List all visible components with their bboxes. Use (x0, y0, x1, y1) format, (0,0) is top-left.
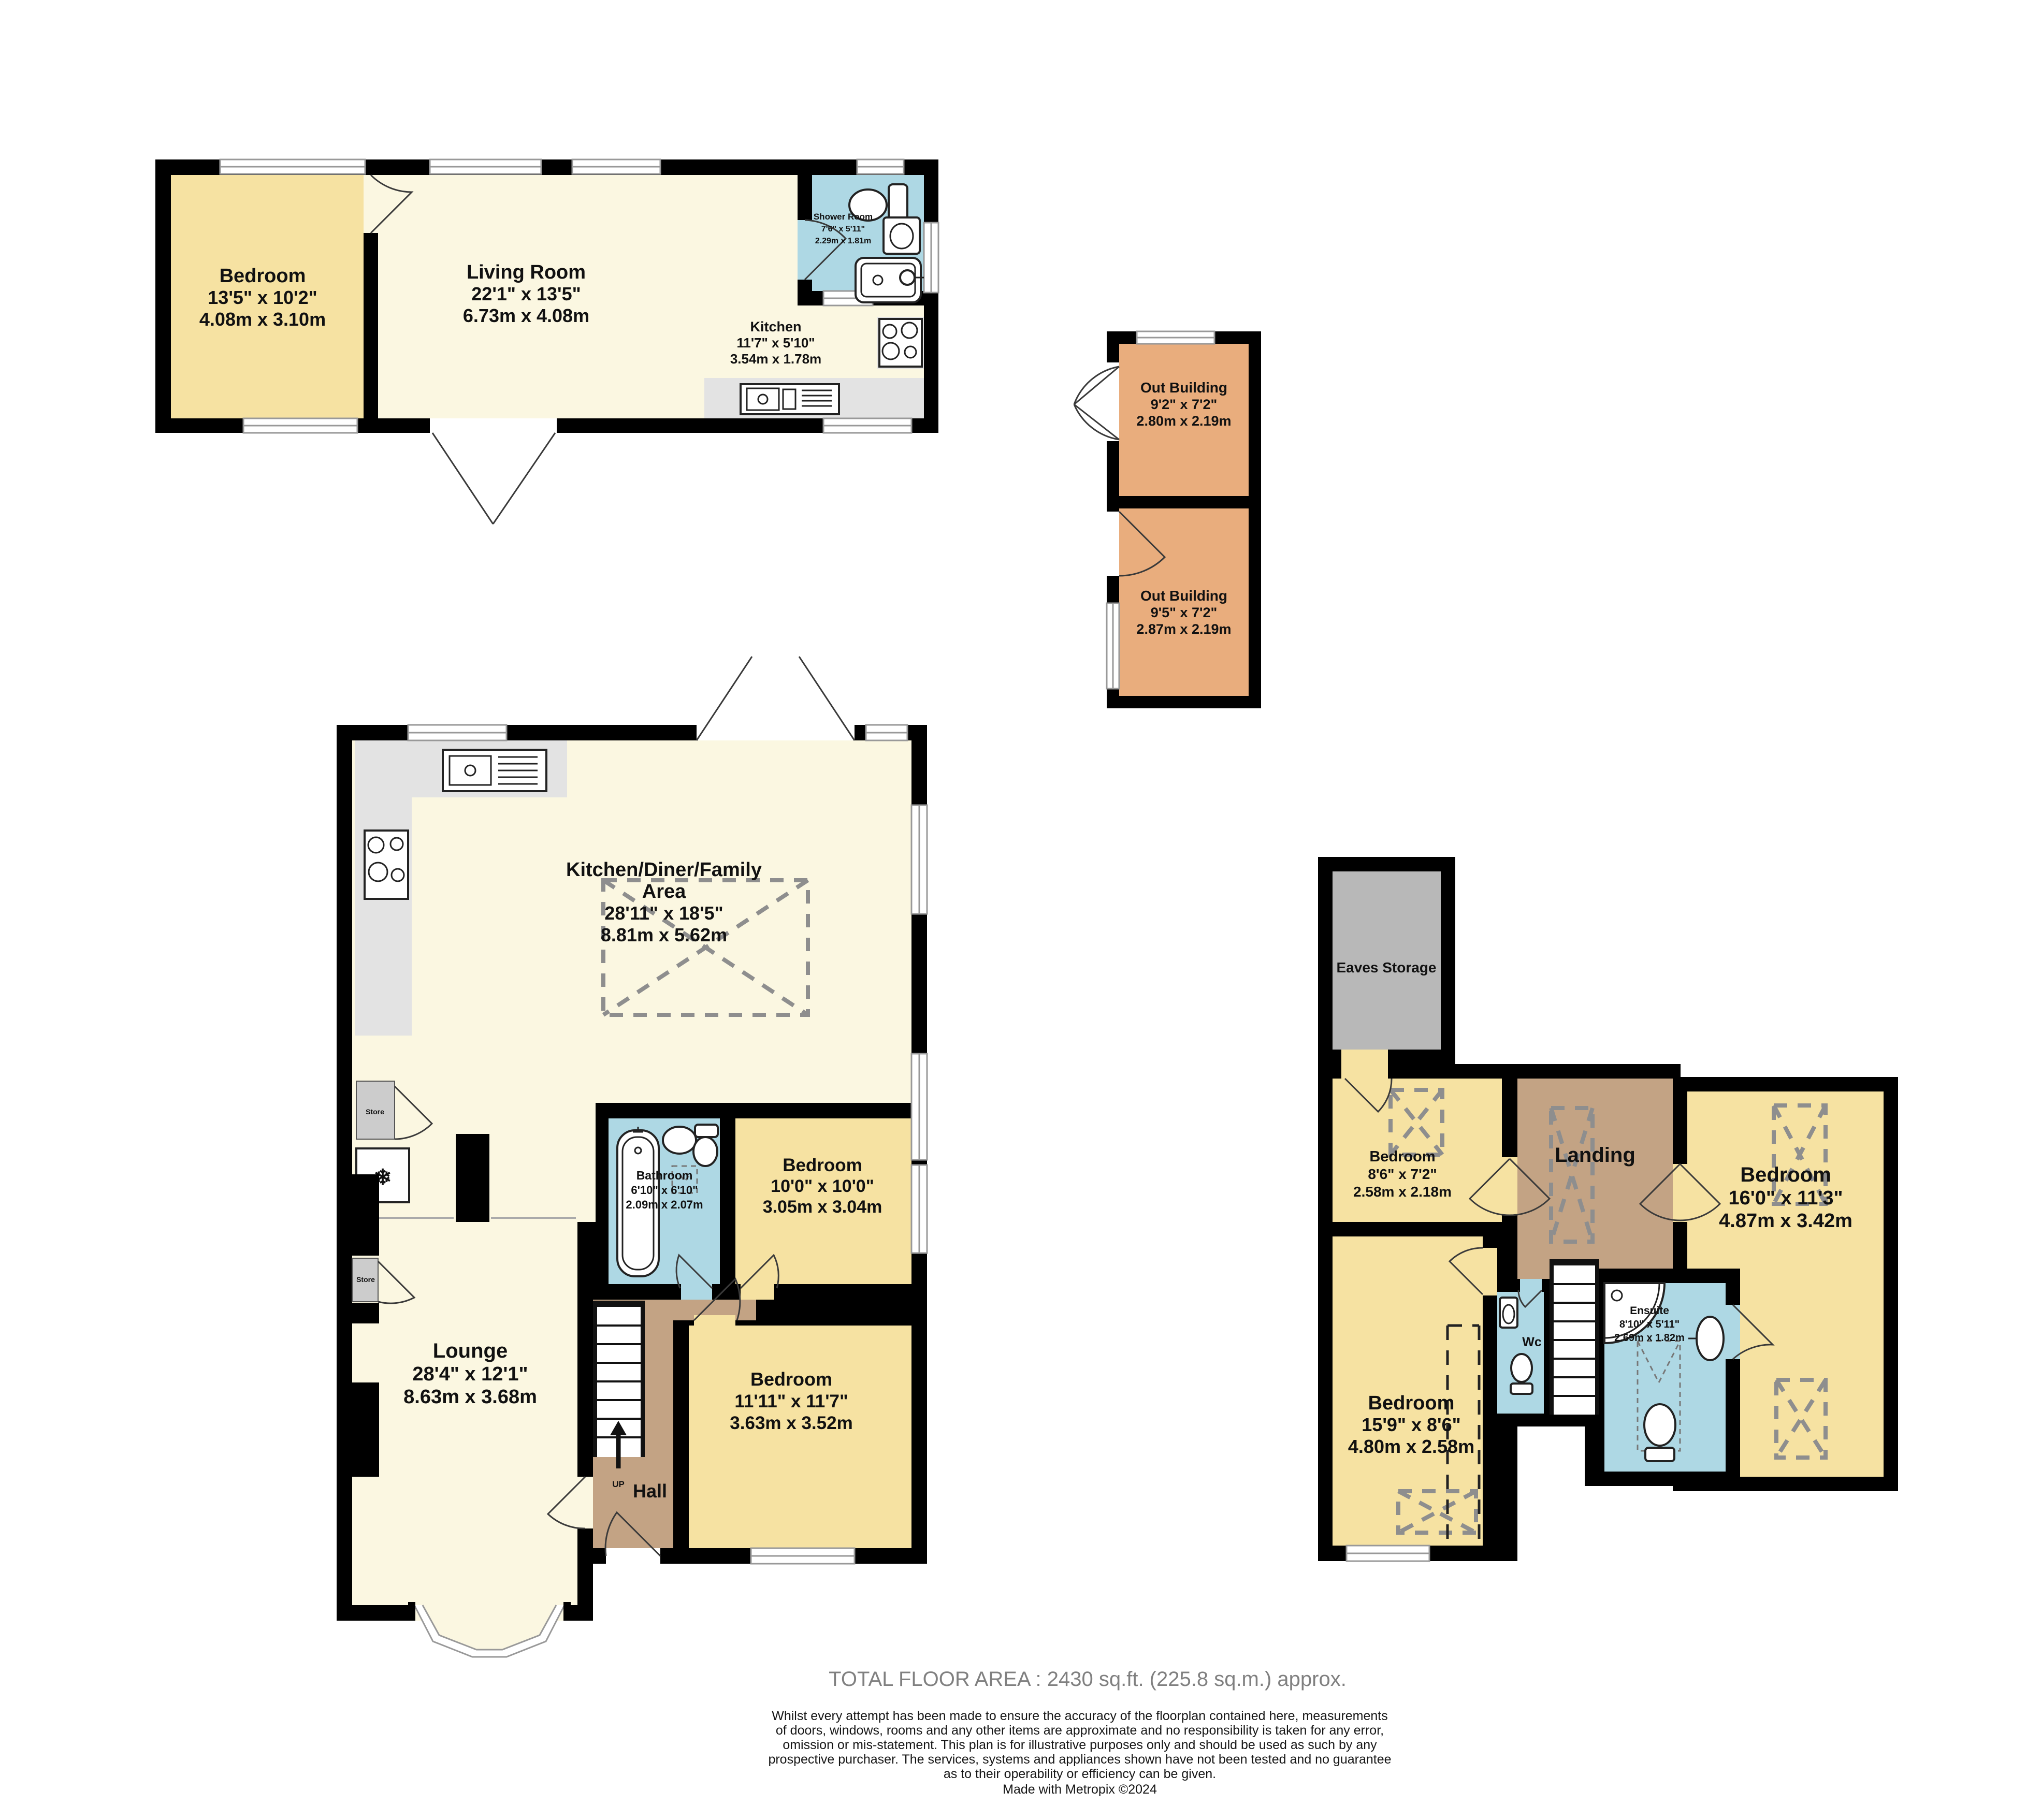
room-dims-metric: 8.81m x 5.62m (601, 924, 727, 945)
room-dims-imperial: 16'0" x 11'3" (1728, 1187, 1843, 1209)
disclaimer-line: omission or mis-statement. This plan is … (783, 1738, 1377, 1752)
room-dims-imperial: 8'10" x 5'11" (1619, 1319, 1680, 1330)
bay-window (408, 1602, 571, 1657)
door-gap (1483, 1248, 1497, 1295)
room-bedroom-4-lower (1740, 1269, 1884, 1477)
chimney-breast (352, 1382, 379, 1477)
room-label: Landing (1555, 1144, 1635, 1167)
room-dims-metric: 4.87m x 3.42m (1719, 1210, 1852, 1232)
disclaimer-line: as to their operability or efficiency ca… (944, 1767, 1216, 1781)
room-label: Kitchen/Diner/Family (566, 859, 762, 881)
room-label: Area (642, 881, 686, 902)
room-dims-metric: 3.54m x 1.78m (730, 351, 821, 367)
door-gap (364, 175, 378, 233)
room-label: Out Building (1140, 588, 1227, 604)
footer: TOTAL FLOOR AREA : 2430 sq.ft. (225.8 sq… (768, 1668, 1391, 1797)
sink-icon (663, 1127, 696, 1154)
room-label: Lounge (433, 1339, 508, 1362)
door-gap (1726, 1305, 1740, 1359)
room-dims-imperial: 8'6" x 7'2" (1368, 1166, 1437, 1182)
room-dims-imperial: 9'5" x 7'2" (1151, 605, 1218, 620)
door-gap (577, 1477, 593, 1528)
store-label: Store (356, 1275, 375, 1284)
room-dims-metric: 8.63m x 3.68m (403, 1386, 537, 1408)
door-gap (1673, 1164, 1687, 1222)
open-door-lines (432, 433, 555, 524)
room-dims-imperial: 13'5" x 10'2" (208, 287, 317, 308)
disclaimer-line: Whilst every attempt has been made to en… (772, 1709, 1388, 1723)
first-floor: Eaves Storage Bedroom 8'6" x 7'2" 2.58m … (1318, 857, 1898, 1561)
bay-post (408, 1602, 415, 1621)
toilet-icon (1644, 1404, 1675, 1461)
door-gap (681, 1284, 712, 1300)
toilet-bowl (1644, 1404, 1675, 1446)
stair-cap (1550, 1259, 1599, 1265)
window (243, 418, 357, 433)
door-gap (798, 220, 812, 280)
window (1107, 603, 1119, 689)
room-dims-imperial: 10'0" x 10'0" (771, 1176, 874, 1196)
room-landing-corridor (1517, 1269, 1554, 1279)
room-lounge (352, 1222, 577, 1605)
window (430, 159, 541, 174)
window (924, 223, 938, 293)
door-gap (1107, 362, 1119, 441)
chimney-breast (352, 1303, 379, 1323)
toilet-tank (1511, 1384, 1532, 1394)
window (1137, 331, 1214, 344)
front-door-gap (606, 1548, 660, 1564)
room-dims-metric: 3.05m x 3.04m (763, 1197, 882, 1217)
room-dims-metric: 2.87m x 2.19m (1136, 621, 1231, 637)
room-bedroom-5 (1333, 1236, 1483, 1546)
sink-basin (1697, 1317, 1724, 1360)
toilet-icon (1511, 1354, 1532, 1394)
stair-stringer (641, 1301, 645, 1457)
room-label: Bedroom (1368, 1392, 1455, 1414)
shower-tray-icon (856, 258, 924, 302)
room-dims-imperial: 6'10" x 6'10" (631, 1184, 698, 1197)
room-label: Ensuite (1630, 1305, 1669, 1317)
room-bedroom-2 (689, 1326, 911, 1548)
toilet-bowl (1511, 1354, 1532, 1382)
pillar (456, 1134, 489, 1222)
room-dims-metric: 4.08m x 3.10m (199, 309, 326, 330)
credit-line: Made with Metropix ©2024 (1003, 1782, 1157, 1797)
room-dims-metric: 3.63m x 3.52m (730, 1413, 852, 1433)
sink-icon (884, 217, 920, 254)
toilet-tank (695, 1125, 718, 1137)
floorplan-svg: Bedroom 13'5" x 10'2" 4.08m x 3.10m Livi… (0, 0, 2041, 1820)
floorplan-page: Bedroom 13'5" x 10'2" 4.08m x 3.10m Livi… (0, 0, 2041, 1820)
room-label: Bedroom (1369, 1148, 1435, 1165)
room-dims-metric: 2.58m x 2.18m (1353, 1184, 1452, 1200)
door-gap (1107, 512, 1119, 576)
window (572, 159, 660, 174)
disclaimer-line: prospective purchaser. The services, sys… (768, 1752, 1391, 1767)
room-dims-metric: 4.80m x 2.58m (1348, 1436, 1474, 1457)
hob-icon (365, 831, 408, 899)
stairs (1550, 1259, 1599, 1415)
window (911, 1054, 927, 1160)
ground-floor: Store ❄ Store (337, 657, 927, 1657)
room-label: Living Room (467, 261, 586, 283)
patio-door-opening (430, 418, 557, 433)
sink-icon (1500, 1298, 1517, 1328)
window (911, 1165, 927, 1253)
window (866, 725, 907, 740)
window (408, 725, 506, 740)
shower-head (900, 270, 915, 285)
stair-cap (593, 1301, 645, 1307)
sink-basin (663, 1127, 696, 1154)
room-dims-metric: 2.80m x 2.19m (1136, 413, 1231, 429)
window (911, 805, 927, 914)
room-label: Wc (1522, 1335, 1542, 1349)
sink-unit-icon (443, 750, 546, 791)
disclaimer-line: of doors, windows, rooms and any other i… (776, 1723, 1384, 1738)
room-dims-metric: 6.73m x 4.08m (463, 305, 589, 326)
room-dims-imperial: 7'6" x 5'11" (821, 225, 865, 234)
room-dims-imperial: 15'9" x 8'6" (1362, 1414, 1460, 1435)
room-dims-metric: 2.29m x 1.81m (815, 237, 872, 245)
bay-post (563, 1602, 571, 1621)
up-label: UP (612, 1479, 625, 1489)
toilet-tank (1645, 1448, 1674, 1461)
sink-unit-icon (741, 384, 839, 414)
window (220, 159, 365, 174)
room-label: Bedroom (1740, 1163, 1831, 1186)
door-gap (741, 1284, 774, 1300)
room-dims-imperial: 22'1" x 13'5" (471, 283, 581, 304)
room-label: Hall (633, 1480, 667, 1502)
room-dims-imperial: 28'4" x 12'1" (412, 1363, 528, 1385)
hob-icon (879, 319, 922, 367)
stair-stringer (1595, 1259, 1599, 1415)
room-label: Bedroom (220, 265, 306, 287)
room-label: Bathroom (636, 1169, 693, 1182)
stair-stringer (593, 1301, 597, 1457)
room-dims-imperial: 11'7" x 5'10" (736, 335, 815, 351)
room-label: Bedroom (783, 1155, 862, 1175)
room-label: Kitchen (750, 319, 801, 334)
window (1347, 1546, 1429, 1561)
french-door-opening (697, 725, 855, 740)
door-gap (694, 1315, 735, 1326)
room-dims-imperial: 9'2" x 7'2" (1151, 397, 1218, 412)
store-label: Store (366, 1108, 384, 1116)
stair-stringer (1550, 1259, 1554, 1415)
total-floor-area: TOTAL FLOOR AREA : 2430 sq.ft. (225.8 sq… (829, 1668, 1347, 1691)
room-label: Out Building (1140, 380, 1227, 396)
toilet-bowl (693, 1137, 717, 1166)
room-landing (1517, 1079, 1673, 1269)
door-gap (1341, 1050, 1388, 1079)
room-label: Bedroom (750, 1368, 832, 1390)
room-label: Eaves Storage (1337, 959, 1437, 975)
door-gap (1520, 1279, 1542, 1292)
room-dims-metric: 2.69m x 1.82m (1614, 1332, 1685, 1344)
annexe-building: Bedroom 13'5" x 10'2" 4.08m x 3.10m Livi… (155, 159, 938, 524)
door-gap (1502, 1157, 1517, 1215)
room-label: Shower Room (814, 212, 873, 222)
room-dims-imperial: 11'11" x 11'7" (734, 1391, 848, 1411)
toilet-icon (693, 1125, 718, 1166)
room-dims-metric: 2.09m x 2.07m (626, 1198, 703, 1211)
outbuildings: Out Building 9'2" x 7'2" 2.80m x 2.19m O… (1074, 331, 1261, 708)
window (751, 1548, 855, 1564)
room-dims-imperial: 28'11" x 18'5" (604, 902, 723, 924)
window (857, 159, 904, 174)
window (823, 418, 911, 433)
chimney-breast (352, 1174, 379, 1256)
